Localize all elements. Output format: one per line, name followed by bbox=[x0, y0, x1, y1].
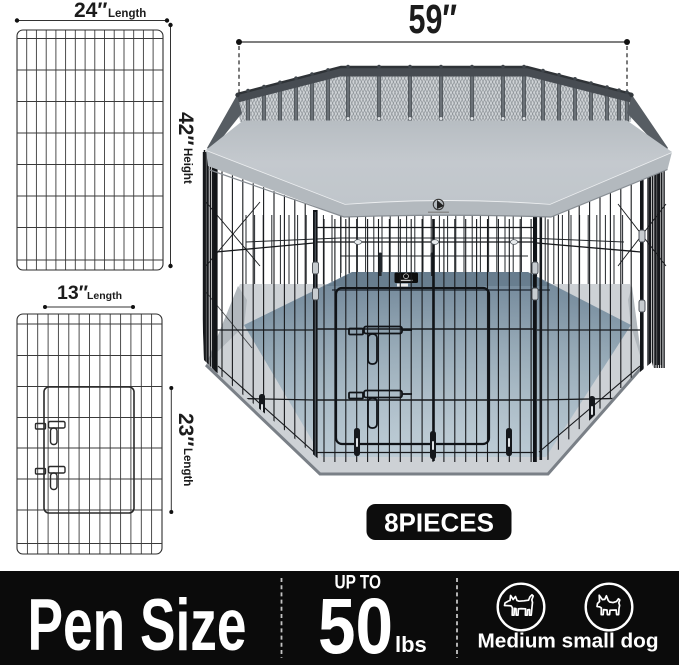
svg-text:23″: 23″ bbox=[174, 413, 197, 446]
svg-text:24″: 24″ bbox=[74, 0, 107, 22]
svg-text:42″: 42″ bbox=[174, 112, 197, 145]
svg-text:Medium small dog: Medium small dog bbox=[478, 630, 659, 653]
svg-text:Length: Length bbox=[181, 448, 193, 486]
svg-text:59″: 59″ bbox=[409, 0, 458, 42]
svg-text:8PIECES: 8PIECES bbox=[384, 508, 494, 538]
svg-text:Length: Length bbox=[87, 290, 122, 302]
svg-text:Pen Size: Pen Size bbox=[28, 585, 247, 665]
svg-text:13″: 13″ bbox=[57, 282, 88, 304]
svg-text:Height: Height bbox=[181, 148, 193, 184]
svg-text:Length: Length bbox=[108, 8, 146, 20]
svg-text:50: 50 bbox=[318, 581, 393, 665]
svg-text:lbs: lbs bbox=[395, 632, 427, 657]
